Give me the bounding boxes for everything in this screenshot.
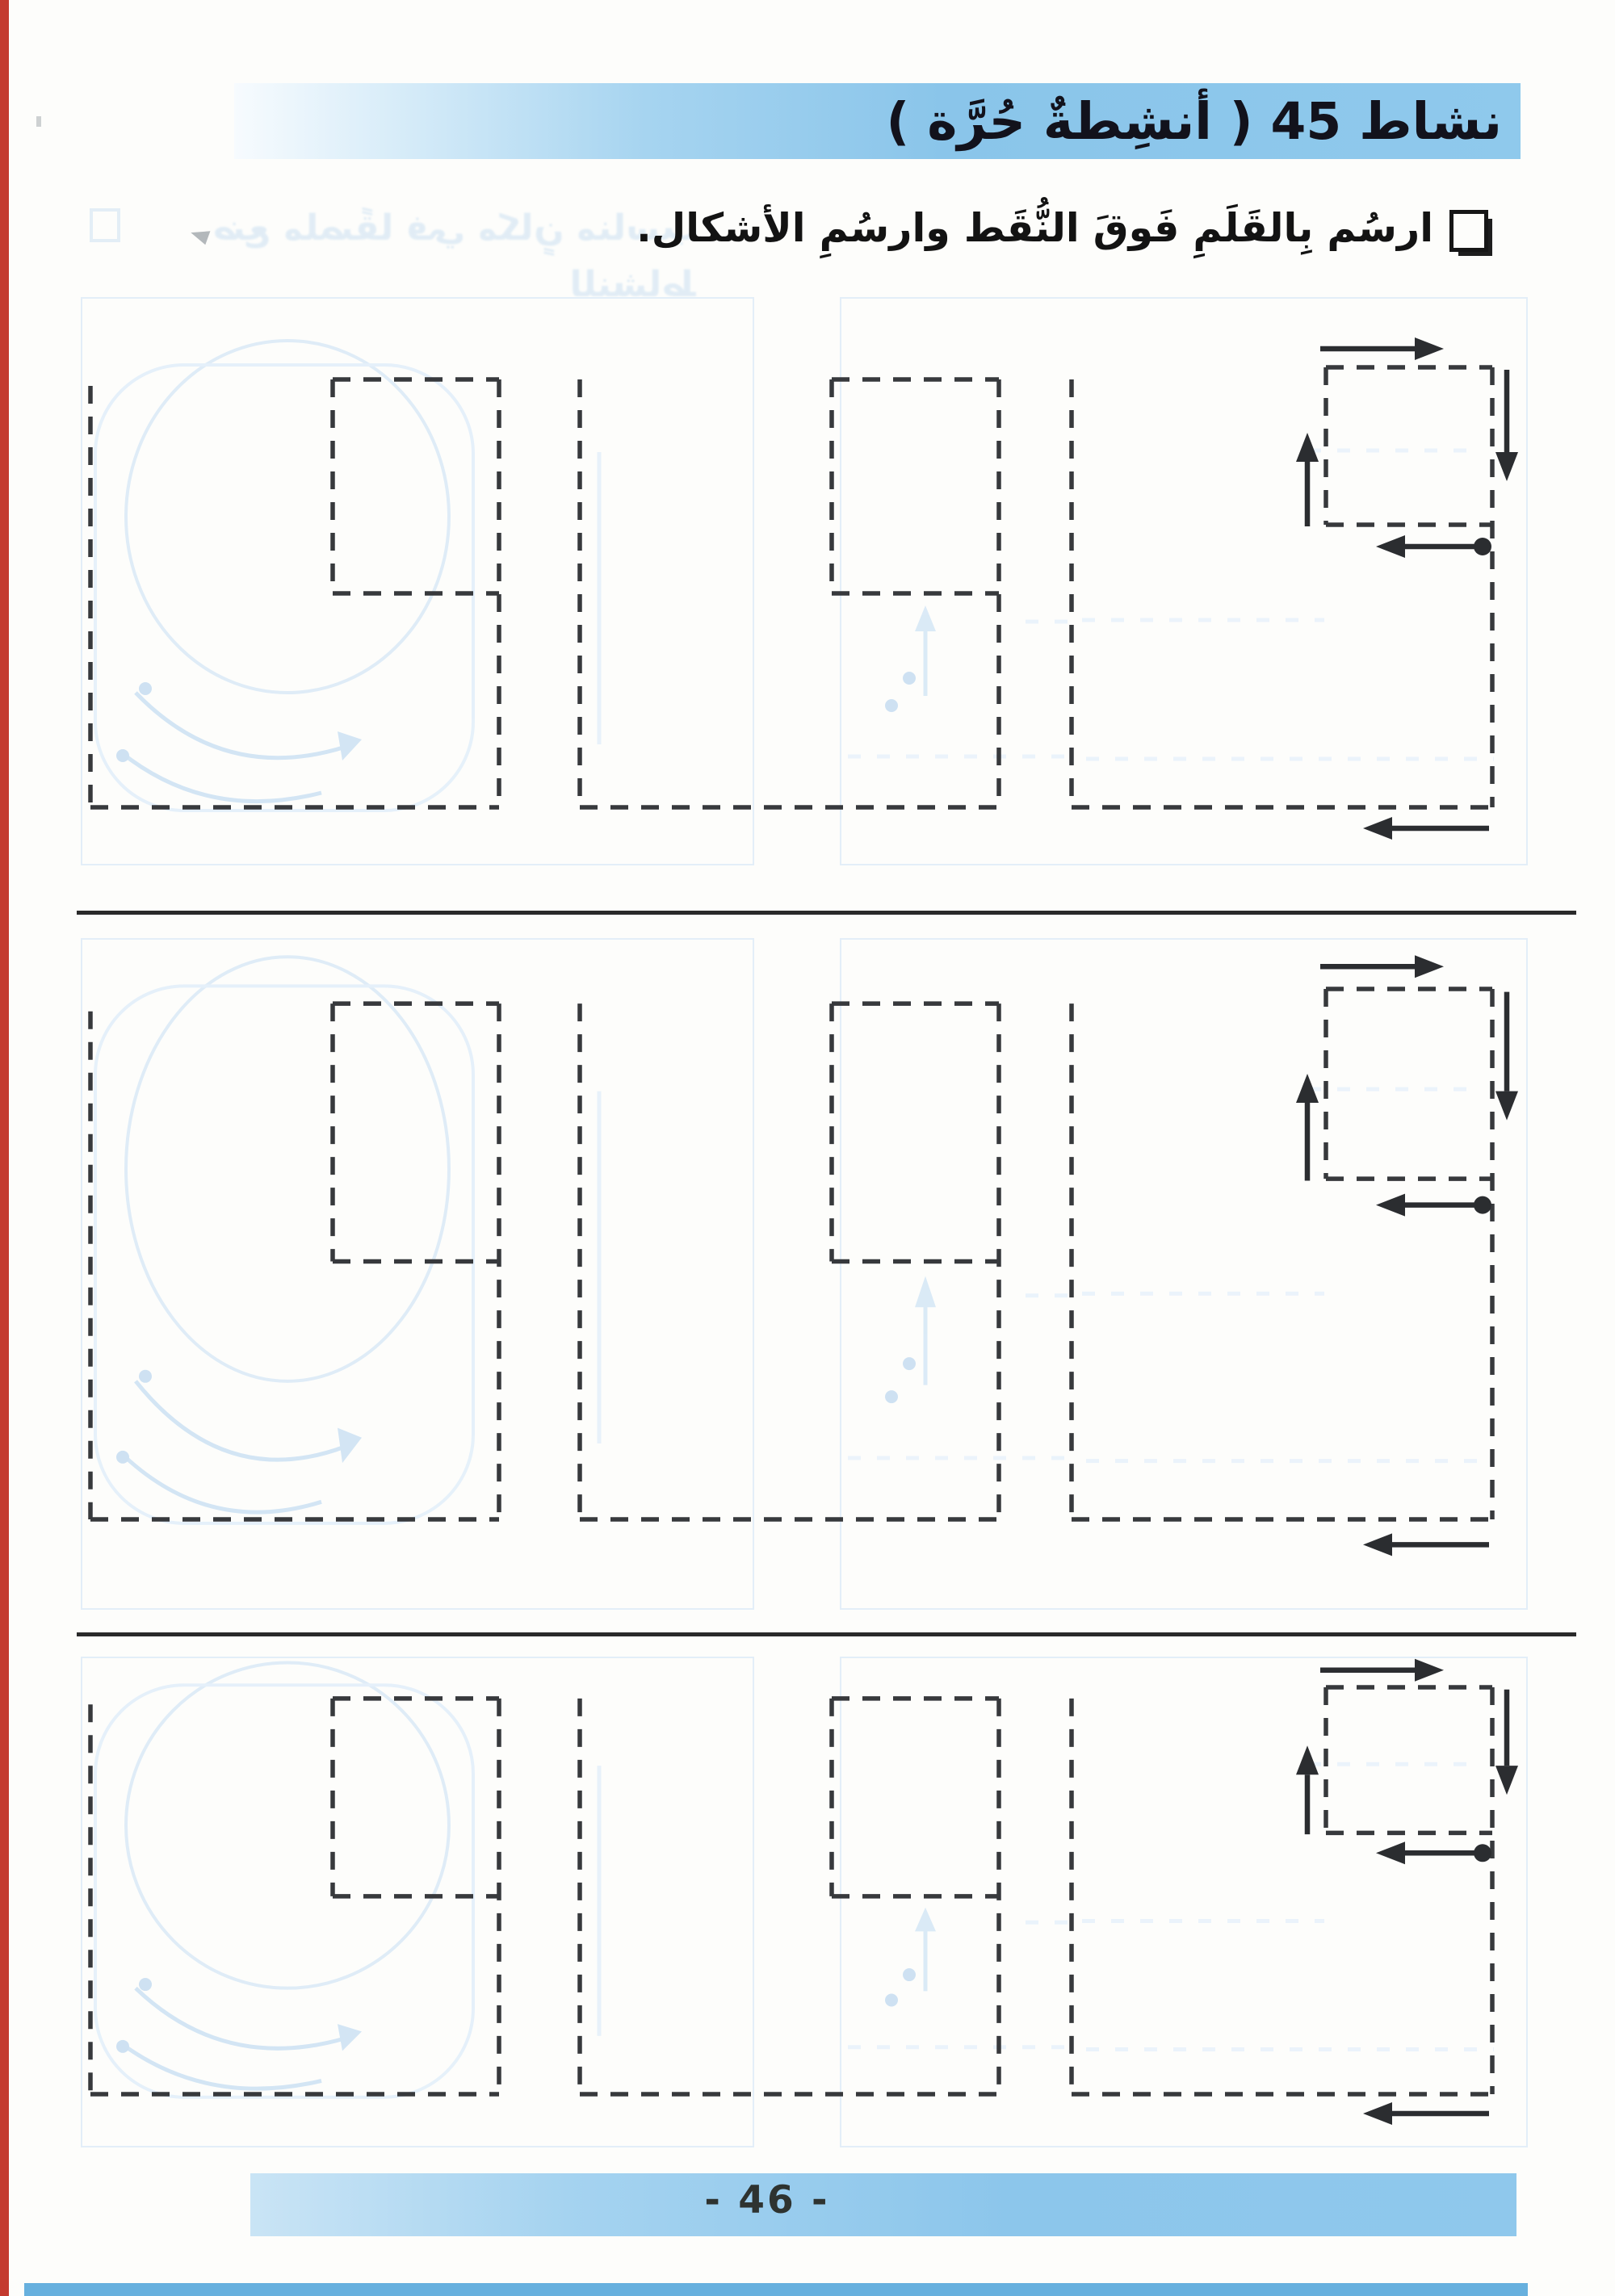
- ghost-dot-2: [116, 749, 129, 762]
- ghost-dot-2: [116, 1451, 129, 1464]
- ghost-ellipse: [126, 341, 449, 693]
- row-3-stroke-arrow-up-head: [1296, 1745, 1319, 1774]
- tracing-figures-svg: [0, 0, 1615, 2296]
- row-1-stroke-arrow-right-head: [1415, 337, 1444, 360]
- ghost-rounded-rect: [95, 986, 473, 1523]
- ghost-dot-2: [116, 2040, 129, 2053]
- row-1-start-dot: [1474, 538, 1491, 555]
- ghost-ellipse: [126, 957, 449, 1381]
- ghost-curved-arrow-2: [121, 752, 321, 802]
- ghost-up-arrowhead: [915, 1276, 936, 1308]
- ghost-up-arrowhead: [915, 1908, 936, 1932]
- row-1-stroke-arrow-down-head: [1495, 452, 1518, 481]
- row-2-stroke-arrow-left-bottom-head: [1363, 1533, 1392, 1556]
- row-3-stroke-arrow-right-head: [1415, 1659, 1444, 1682]
- row-1-stroke-arrow-up-head: [1296, 433, 1319, 462]
- tracing-row-2: [90, 955, 1518, 1556]
- ghost-arrowhead: [338, 1428, 362, 1463]
- ghost-dot-3: [903, 1968, 916, 1981]
- ghost-curved-arrow-2: [121, 1453, 321, 1512]
- row-2-ghost-art: [95, 957, 1494, 1523]
- ghost-curved-arrow-1: [136, 1988, 346, 2049]
- ghost-dot-4: [885, 699, 898, 712]
- ghost-rounded-rect: [95, 1685, 473, 2097]
- row-1-stroke-arrow-left-bottom-head: [1363, 817, 1392, 840]
- row-2-start-dot: [1474, 1196, 1491, 1214]
- ghost-dot-3: [903, 672, 916, 685]
- ghost-arrowhead: [338, 731, 362, 760]
- row-2-stroke-arrow-right-head: [1415, 955, 1444, 978]
- ghost-dot-3: [903, 1357, 916, 1370]
- row-1-stroke-arrow-left-dot-head: [1376, 535, 1405, 558]
- ghost-ellipse: [126, 1662, 449, 1988]
- row-3-stroke-arrow-left-bottom-head: [1363, 2102, 1392, 2125]
- ghost-arrowhead: [338, 2024, 362, 2051]
- ghost-dot-1: [139, 682, 152, 695]
- tracing-row-3: [90, 1659, 1518, 2125]
- ghost-rounded-rect: [95, 365, 473, 811]
- row-3-ghost-art: [95, 1662, 1494, 2097]
- row-3-start-dot: [1474, 1844, 1491, 1862]
- row-1-ghost-art: [95, 341, 1494, 811]
- row-3-stroke-arrow-left-dot-head: [1376, 1841, 1405, 1864]
- ghost-curved-arrow-1: [136, 1381, 346, 1460]
- ghost-curved-arrow-1: [136, 693, 346, 758]
- ghost-dot-1: [139, 1978, 152, 1991]
- row-2-stroke-arrow-down-head: [1495, 1091, 1518, 1121]
- footer-page-number: - 46 -: [250, 2178, 1284, 2223]
- row-2-stroke-arrow-left-dot-head: [1376, 1194, 1405, 1217]
- row-3-stroke-arrow-down-head: [1495, 1766, 1518, 1795]
- tracing-row-1: [90, 337, 1518, 840]
- ghost-curved-arrow-2: [121, 2043, 321, 2089]
- ghost-dot-4: [885, 1993, 898, 2006]
- ghost-dot-4: [885, 1390, 898, 1403]
- ghost-up-arrowhead: [915, 605, 936, 631]
- ghost-dot-1: [139, 1370, 152, 1383]
- workbook-page: نشاط 45 ( أنشِطةٌ حُرَّة ) ضع ملصقًا في …: [0, 0, 1615, 2296]
